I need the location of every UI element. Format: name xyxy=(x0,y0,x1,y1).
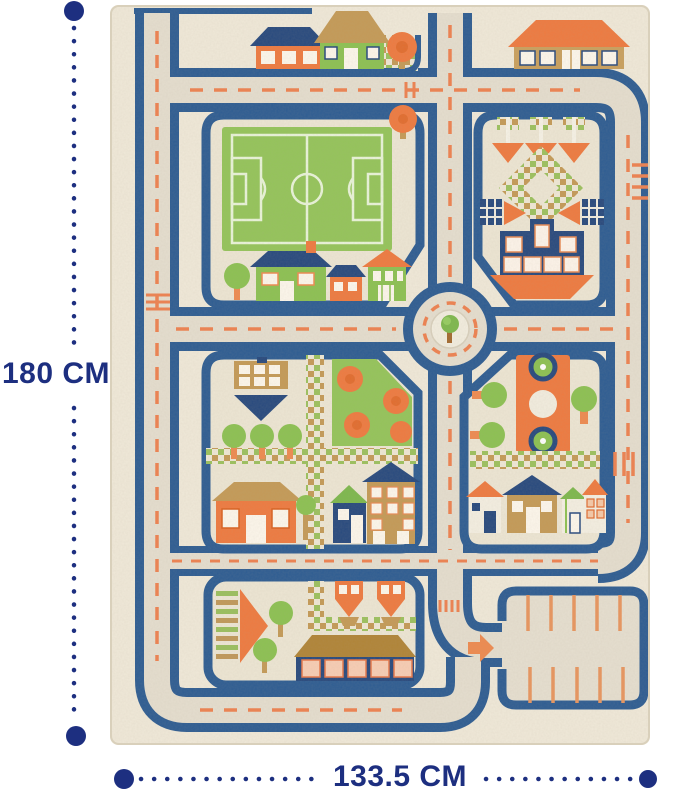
product-image-page: 180 CM 133.5 CM xyxy=(0,0,679,792)
width-label: 133.5 CM xyxy=(318,760,482,792)
carpet-texture xyxy=(110,5,650,745)
height-label: 180 CM xyxy=(0,357,112,391)
play-rug-photo xyxy=(110,5,650,745)
